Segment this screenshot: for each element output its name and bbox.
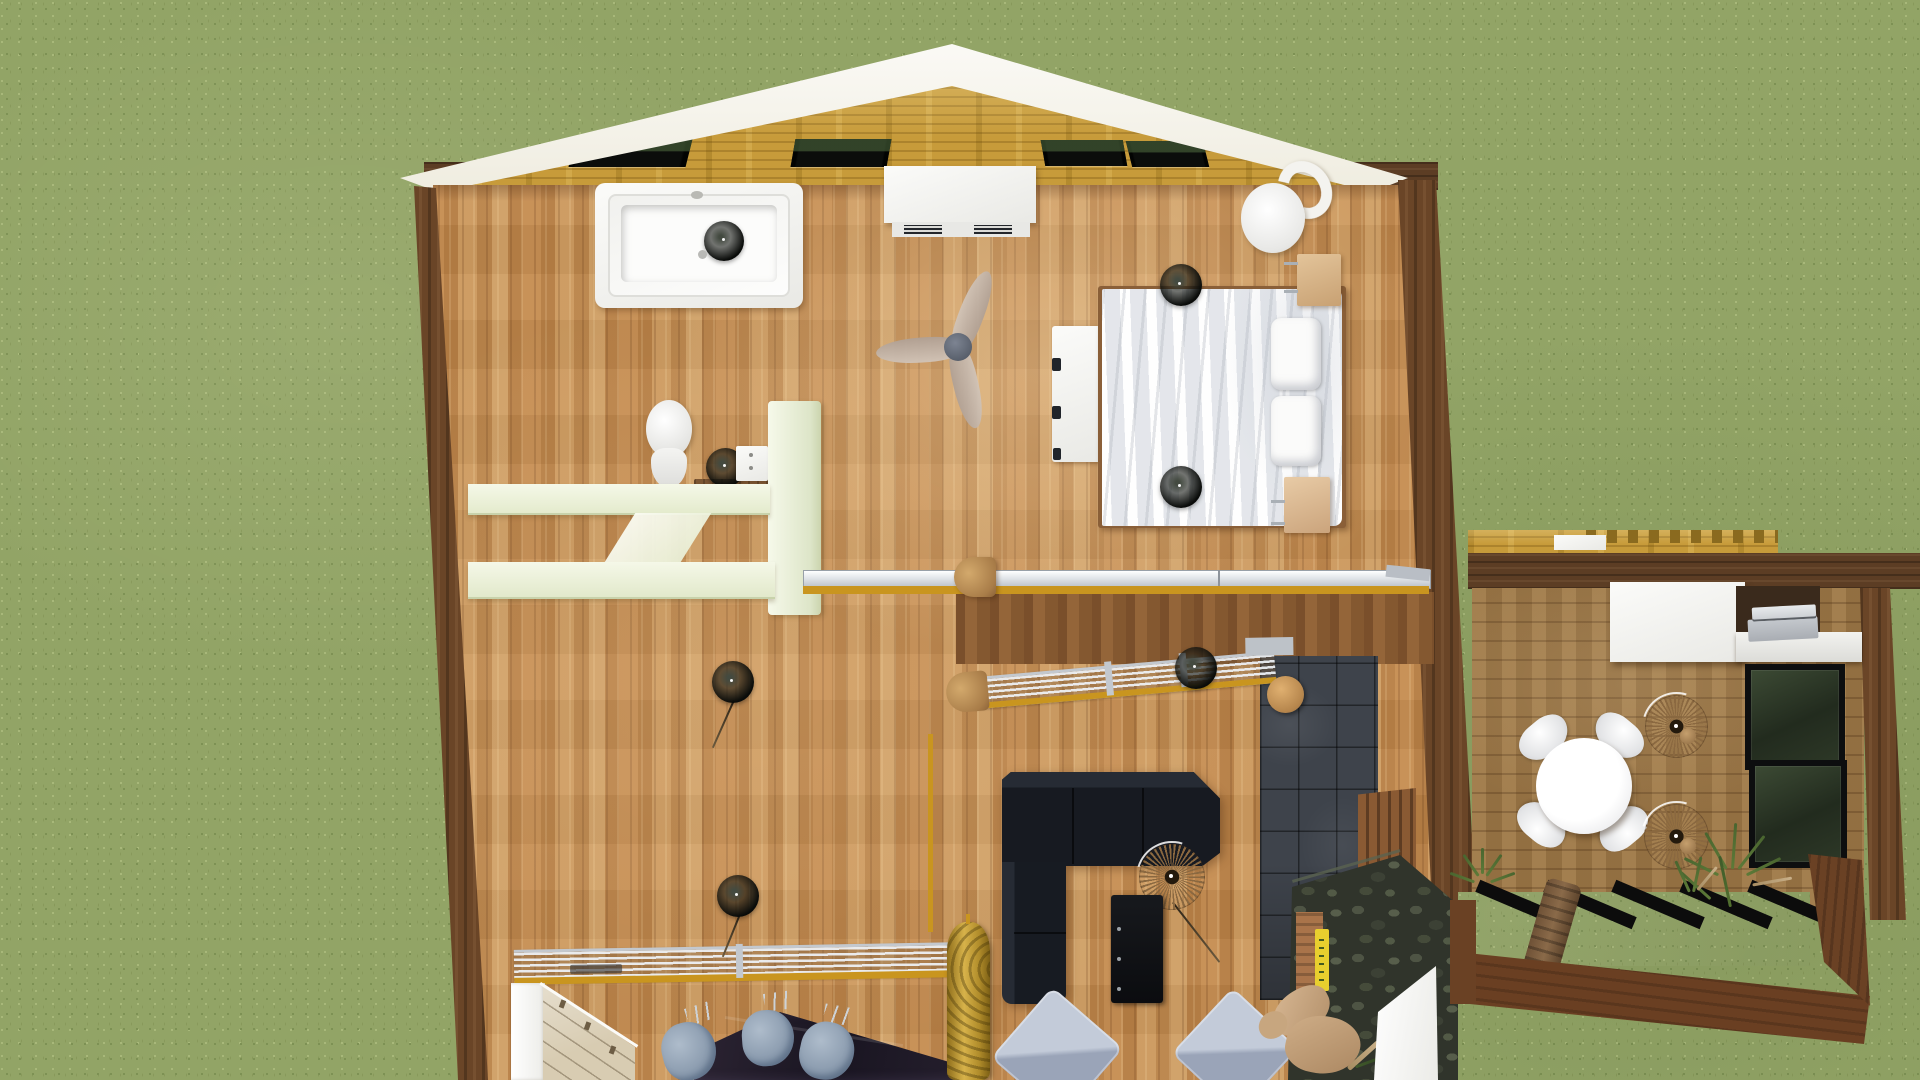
shelf-partition[interactable] bbox=[460, 395, 830, 625]
nightstand-leg bbox=[1271, 500, 1285, 503]
nightstand-leg bbox=[1271, 522, 1285, 525]
skylight-3[interactable] bbox=[1041, 140, 1128, 166]
bar-chair-1[interactable] bbox=[660, 1004, 720, 1080]
counter-top-tiles bbox=[543, 985, 647, 1080]
pergola-frame-left bbox=[1450, 900, 1476, 1004]
wall-cabinet-vents bbox=[892, 222, 1030, 237]
bathtub-basin bbox=[621, 205, 777, 282]
partition-shelf-bottom bbox=[468, 562, 775, 599]
cabinet-handle bbox=[1117, 987, 1121, 991]
railing-post bbox=[736, 944, 744, 978]
plant-leaf bbox=[1450, 872, 1475, 884]
sofa-seam bbox=[1014, 932, 1066, 934]
kitchen-counter[interactable] bbox=[509, 980, 649, 1080]
deck-roof-window bbox=[1554, 535, 1606, 550]
pendant-cup bbox=[1680, 728, 1696, 744]
ceiling-fan[interactable] bbox=[870, 260, 1046, 436]
partition-divider bbox=[605, 513, 712, 562]
slat-shadow bbox=[570, 964, 622, 974]
cabinet-handle bbox=[1117, 927, 1121, 931]
vent-slats bbox=[974, 225, 1012, 234]
skylight-2[interactable] bbox=[791, 139, 892, 167]
rattan-pendant-patio-1[interactable] bbox=[1645, 695, 1708, 758]
plant-leaf bbox=[1462, 854, 1479, 877]
pendant-light-kitchen-1[interactable] bbox=[712, 661, 754, 703]
chair-shell bbox=[740, 1008, 796, 1067]
chair-shell bbox=[656, 1016, 722, 1080]
railing-seam bbox=[1218, 570, 1220, 587]
plant-leaf bbox=[1731, 823, 1737, 869]
railing-post-round bbox=[945, 670, 990, 714]
pendant-light-kitchen-2[interactable] bbox=[717, 875, 759, 917]
carved-wood-pillar[interactable] bbox=[947, 922, 990, 1080]
bedside-bench[interactable] bbox=[1052, 326, 1104, 462]
pillar-tip bbox=[966, 914, 970, 924]
partition-shelf-top bbox=[468, 484, 770, 515]
railing-post-round bbox=[954, 557, 996, 597]
vent-slats bbox=[904, 225, 942, 234]
bench-item bbox=[1052, 358, 1061, 371]
bar-chair-2[interactable] bbox=[740, 992, 798, 1066]
cabinet-handle bbox=[1117, 957, 1121, 961]
pillow bbox=[1271, 318, 1321, 390]
bench-item bbox=[1053, 448, 1061, 460]
counter-side bbox=[511, 983, 545, 1080]
patio-deck bbox=[1440, 425, 1920, 1080]
bench-item bbox=[1052, 406, 1061, 419]
chair-shell bbox=[795, 1017, 860, 1080]
nightstand-leg bbox=[1284, 290, 1298, 293]
bar-chair-3[interactable] bbox=[796, 1004, 856, 1080]
sofa-seam bbox=[1072, 788, 1074, 864]
glass-door-panel-1[interactable] bbox=[1745, 664, 1845, 770]
ceiling-light-bed-2[interactable] bbox=[1160, 466, 1202, 508]
deck-roof-notches bbox=[1586, 530, 1778, 543]
ceiling-light-bath[interactable] bbox=[704, 221, 744, 261]
newel-post bbox=[1267, 676, 1304, 713]
patio-table[interactable] bbox=[1536, 738, 1632, 834]
bathtub-faucet bbox=[691, 191, 703, 199]
deck-right-wall bbox=[1860, 588, 1906, 920]
armchair-seat bbox=[1241, 183, 1305, 253]
loft-edge-line bbox=[928, 734, 933, 932]
ceiling-light-bed-1[interactable] bbox=[1160, 264, 1202, 306]
plant-leaf bbox=[1485, 854, 1502, 877]
ornamental-grass-1[interactable] bbox=[1455, 840, 1505, 900]
railing-end-cap bbox=[1245, 637, 1293, 656]
round-armchair[interactable] bbox=[1236, 155, 1346, 265]
fan-hub bbox=[944, 333, 972, 361]
ornamental-grass-3[interactable] bbox=[1662, 850, 1722, 920]
railing-wood-edge bbox=[803, 586, 1429, 594]
media-cabinet[interactable] bbox=[1111, 895, 1163, 1003]
bathtub-drain bbox=[698, 250, 707, 259]
plant-leaf bbox=[1481, 848, 1484, 874]
floorplan-render bbox=[0, 0, 1920, 1080]
wall-cabinet[interactable] bbox=[884, 166, 1036, 223]
pillow bbox=[1271, 396, 1321, 466]
glass-railing[interactable] bbox=[803, 555, 1443, 597]
chair-legs bbox=[763, 990, 795, 1012]
nightstand-2[interactable] bbox=[1284, 477, 1330, 533]
wall-desk[interactable] bbox=[1610, 582, 1745, 662]
plant-leaf bbox=[1674, 860, 1691, 892]
pendant-light-stairs[interactable] bbox=[1175, 647, 1217, 689]
bathtub[interactable] bbox=[595, 183, 803, 308]
